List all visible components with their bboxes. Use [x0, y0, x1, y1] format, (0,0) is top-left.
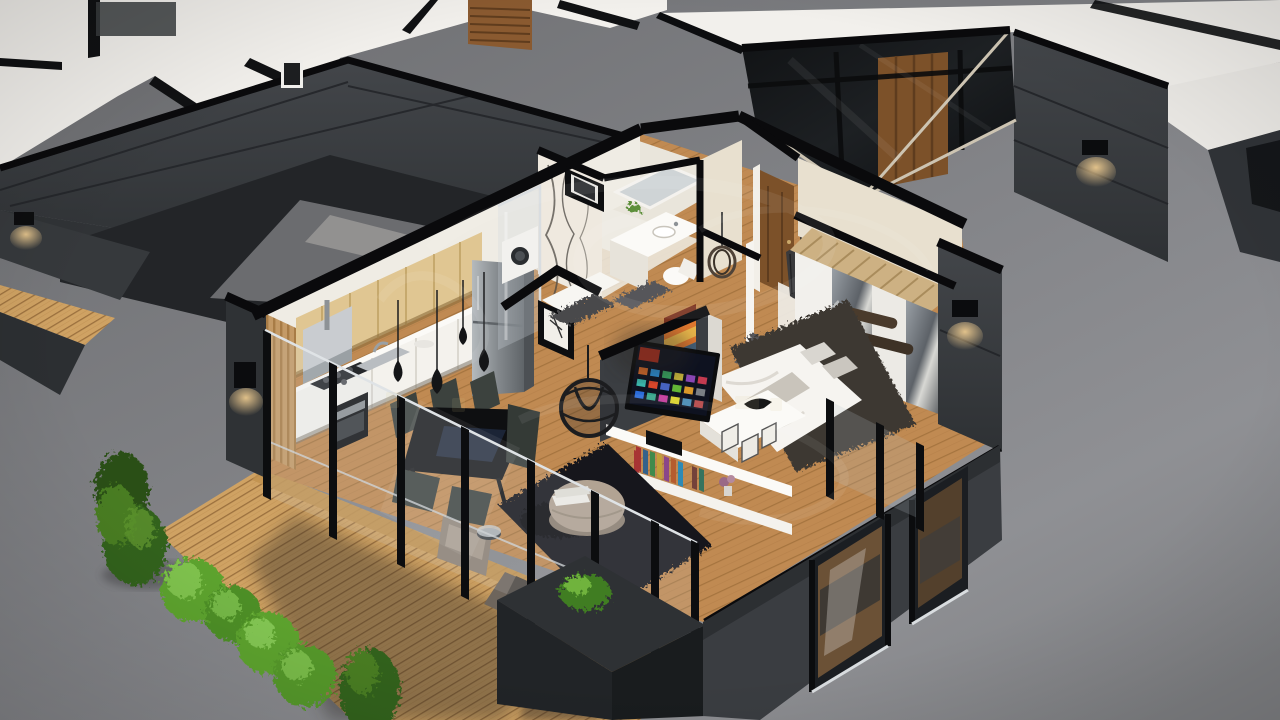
render-canvas [0, 0, 1280, 720]
apartment-render [0, 0, 1280, 720]
vignette-overlay [0, 0, 1280, 720]
